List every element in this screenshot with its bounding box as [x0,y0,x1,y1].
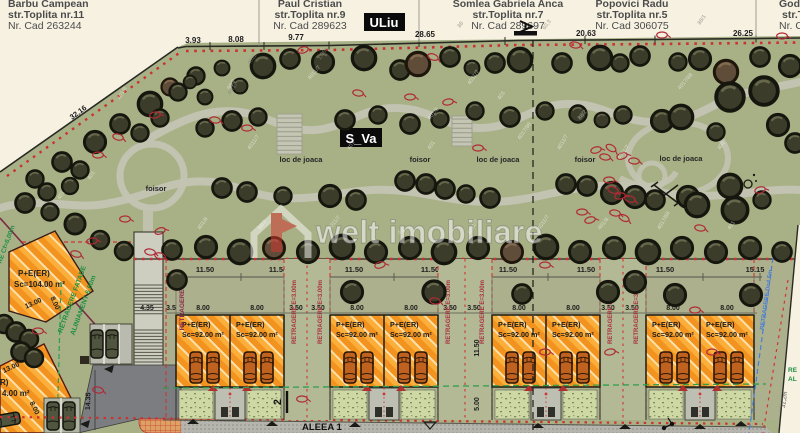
svg-text:11.50: 11.50 [577,265,595,274]
svg-text:5.00: 5.00 [474,397,481,411]
svg-text:Sc=104.00 m²: Sc=104.00 m² [14,280,65,289]
svg-text:8.08: 8.08 [228,35,244,44]
svg-text:loc de joaca: loc de joaca [280,155,324,164]
svg-text:Sc=92.00 m²: Sc=92.00 m² [706,330,748,339]
svg-text:foisor: foisor [575,155,596,164]
svg-text:Nr. Cad 263244: Nr. Cad 263244 [8,20,82,32]
svg-text:11.50: 11.50 [474,339,481,356]
svg-text:ALEEA 1: ALEEA 1 [302,422,342,433]
svg-text:RE: RE [788,367,798,374]
svg-text:RETRAGERE E=3.00m: RETRAGERE E=3.00m [480,280,486,344]
svg-text:26.25: 26.25 [733,29,754,38]
svg-text:4.35: 4.35 [140,305,154,312]
svg-text:Sc=92.00 m²: Sc=92.00 m² [336,330,378,339]
svg-text:P+E(ER): P+E(ER) [552,320,581,329]
svg-text:14.35: 14.35 [85,392,93,410]
svg-text:11.50: 11.50 [656,265,674,274]
svg-text:ULiu: ULiu [370,15,399,30]
svg-text:9.77: 9.77 [288,33,304,42]
svg-text:foisor: foisor [410,155,431,164]
svg-text:8.00: 8.00 [350,305,364,312]
svg-text:8.00: 8.00 [566,305,580,312]
svg-text:P+E(ER): P+E(ER) [336,320,365,329]
svg-text:loc de joaca: loc de joaca [660,154,704,163]
svg-text:loc de joaca: loc de joaca [477,155,521,164]
svg-text:welt imobiliare: welt imobiliare [315,214,543,250]
svg-text:15.15: 15.15 [746,265,765,274]
svg-text:AL: AL [788,376,797,383]
svg-text:RETRAGERE E=3.00m: RETRAGERE E=3.00m [446,280,452,344]
svg-text:Nr. Cad 289623: Nr. Cad 289623 [273,20,347,32]
svg-text:8.00: 8.00 [250,305,264,312]
svg-text:11.50: 11.50 [421,265,439,274]
svg-text:P+E(ER): P+E(ER) [182,320,211,329]
svg-text:3.5: 3.5 [166,305,176,312]
svg-text:Nr. Cad 289697: Nr. Cad 289697 [471,20,545,32]
svg-text:Sc=92.00 m²: Sc=92.00 m² [652,330,694,339]
svg-text:P+E(ER): P+E(ER) [652,320,681,329]
svg-text:8.00: 8.00 [720,305,734,312]
svg-text:11.50: 11.50 [345,265,363,274]
svg-text:Sc=92.00 m²: Sc=92.00 m² [552,330,594,339]
svg-text:Sc=92.00 m²: Sc=92.00 m² [236,330,278,339]
svg-text:11.50: 11.50 [499,265,517,274]
svg-text:20.63: 20.63 [576,29,597,38]
svg-text:8.00: 8.00 [404,305,418,312]
svg-text:RETRAGERE E=3.00m: RETRAGERE E=3.00m [318,280,324,344]
svg-text:Sc=92.00 m²: Sc=92.00 m² [182,330,224,339]
svg-text:Sc=92.00 m²: Sc=92.00 m² [390,330,432,339]
svg-text:2: 2 [272,399,284,405]
svg-text:3.93: 3.93 [185,36,201,45]
svg-text:3.50: 3.50 [467,305,481,312]
svg-text:R): R) [0,378,9,387]
svg-text:Nr. Ca: Nr. Ca [779,20,800,32]
svg-text:foisor: foisor [146,184,167,193]
svg-text:Nr. Cad 306075: Nr. Cad 306075 [595,20,669,32]
svg-text:4.00 m²: 4.00 m² [2,389,30,398]
svg-text:Sc=92.00 m²: Sc=92.00 m² [498,330,540,339]
svg-text:P+E(ER): P+E(ER) [706,320,735,329]
svg-text:11.50: 11.50 [196,265,214,274]
svg-text:RETRAGERE: RETRAGERE [179,289,186,330]
svg-text:28.65: 28.65 [415,30,436,39]
svg-text:P+E(ER): P+E(ER) [498,320,527,329]
svg-text:P+E(ER): P+E(ER) [236,320,265,329]
svg-text:P+E(ER): P+E(ER) [18,269,50,278]
svg-text:8.00: 8.00 [196,305,210,312]
svg-text:P+E(ER): P+E(ER) [390,320,419,329]
svg-text:RETRAGERE E=3.00m: RETRAGERE E=3.00m [292,280,298,344]
svg-text:8.00: 8.00 [512,305,526,312]
